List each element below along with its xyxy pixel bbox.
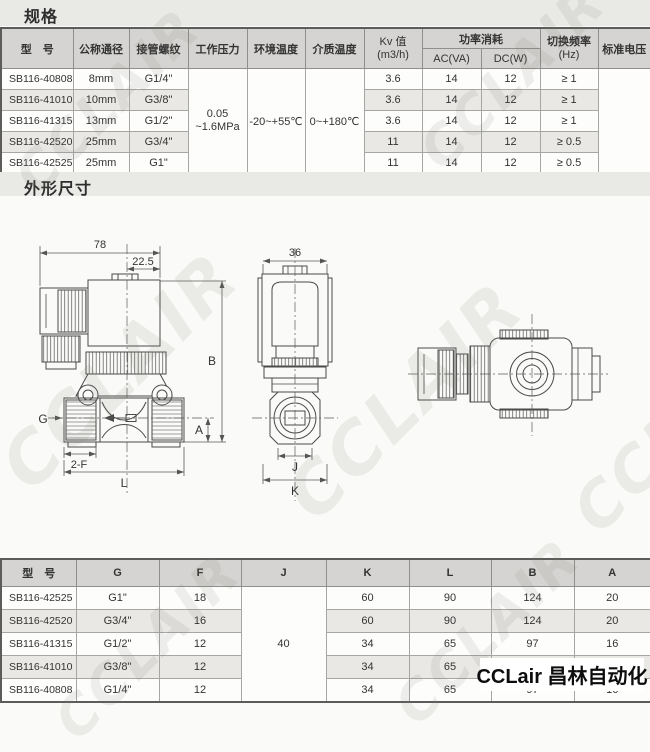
f-cell: 18 bbox=[159, 587, 241, 610]
j-merged-cell: 40 bbox=[241, 587, 326, 703]
g-cell: G1/2" bbox=[76, 633, 159, 656]
model-cell: SB116-40808 bbox=[1, 69, 73, 90]
dim-label-J: J bbox=[292, 460, 298, 474]
freq-cell: ≥ 1 bbox=[540, 69, 598, 90]
thread-cell: G3/4" bbox=[129, 132, 188, 153]
f-cell: 12 bbox=[159, 679, 241, 703]
freq-header-line1: 切换频率 bbox=[541, 36, 598, 49]
diameter-cell: 25mm bbox=[73, 132, 129, 153]
kv-cell: 11 bbox=[364, 153, 422, 175]
dc-cell: 12 bbox=[481, 69, 540, 90]
diameter-cell: 8mm bbox=[73, 69, 129, 90]
spec-header-voltage: 标准电压 bbox=[598, 28, 650, 69]
g-cell: G1/4" bbox=[76, 679, 159, 703]
f-cell: 12 bbox=[159, 633, 241, 656]
spec-table: 型 号 公称通径 接管螺纹 工作压力 环境温度 介质温度 Kv 值 (m3/h)… bbox=[0, 27, 650, 175]
spec-header-dc: DC(W) bbox=[481, 49, 540, 69]
spec-section-band bbox=[0, 0, 650, 26]
dim-label-K: K bbox=[291, 484, 299, 498]
spec-header-medium: 介质温度 bbox=[305, 28, 364, 69]
ac-cell: 14 bbox=[422, 132, 481, 153]
spec-row-0: SB116-40808 8mm G1/4" 0.05 ~1.6MPa -20~+… bbox=[1, 69, 650, 90]
model-cell: SB116-42525 bbox=[1, 587, 76, 610]
freq-header-line2: (Hz) bbox=[541, 49, 598, 62]
pressure-line1: 0.05 bbox=[189, 108, 247, 121]
model-cell: SB116-42520 bbox=[1, 610, 76, 633]
l-cell: 90 bbox=[409, 587, 491, 610]
dim-header-model: 型 号 bbox=[1, 559, 76, 587]
model-cell: SB116-41010 bbox=[1, 656, 76, 679]
k-cell: 34 bbox=[326, 656, 409, 679]
dc-cell: 12 bbox=[481, 132, 540, 153]
dim-row-2: SB116-41315 G1/2" 12 34 65 97 16 bbox=[1, 633, 650, 656]
model-cell: SB116-42525 bbox=[1, 153, 73, 175]
dim-label-22-5: 22.5 bbox=[132, 256, 153, 268]
spec-header-ac: AC(VA) bbox=[422, 49, 481, 69]
kv-cell: 3.6 bbox=[364, 90, 422, 111]
valve-side-view bbox=[40, 274, 184, 447]
thread-cell: G1" bbox=[129, 153, 188, 175]
l-cell: 90 bbox=[409, 610, 491, 633]
dim-row-0: SB116-42525 G1" 18 40 60 90 124 20 bbox=[1, 587, 650, 610]
f-cell: 16 bbox=[159, 610, 241, 633]
valve-outline-drawings: 78 22.5 B G A 2-F L 36 J K bbox=[0, 196, 650, 558]
g-cell: G1" bbox=[76, 587, 159, 610]
spec-header-diameter: 公称通径 bbox=[73, 28, 129, 69]
dim-label-B: B bbox=[208, 354, 216, 368]
k-cell: 34 bbox=[326, 679, 409, 703]
a-cell: 16 bbox=[574, 633, 650, 656]
dim-header-K: K bbox=[326, 559, 409, 587]
k-cell: 60 bbox=[326, 610, 409, 633]
kv-cell: 11 bbox=[364, 132, 422, 153]
ac-cell: 14 bbox=[422, 90, 481, 111]
dim-header-G: G bbox=[76, 559, 159, 587]
diameter-cell: 13mm bbox=[73, 111, 129, 132]
ambient-merged-cell: -20~+55℃ bbox=[247, 69, 305, 175]
model-cell: SB116-40808 bbox=[1, 679, 76, 703]
dim-label-36: 36 bbox=[289, 247, 301, 259]
spec-header-ambient: 环境温度 bbox=[247, 28, 305, 69]
k-cell: 34 bbox=[326, 633, 409, 656]
datasheet-page: { "titles": { "spec": "规格", "dims": "外形尺… bbox=[0, 0, 650, 702]
kv-header-line1: Kv 值 bbox=[365, 36, 422, 49]
model-cell: SB116-41010 bbox=[1, 90, 73, 111]
l-cell: 65 bbox=[409, 633, 491, 656]
dim-header-A: A bbox=[574, 559, 650, 587]
model-cell: SB116-41315 bbox=[1, 633, 76, 656]
b-cell: 124 bbox=[491, 610, 574, 633]
freq-cell: ≥ 0.5 bbox=[540, 153, 598, 175]
pressure-line2: ~1.6MPa bbox=[189, 121, 247, 134]
dc-cell: 12 bbox=[481, 153, 540, 175]
k-cell: 60 bbox=[326, 587, 409, 610]
dc-cell: 12 bbox=[481, 111, 540, 132]
spec-header-pressure: 工作压力 bbox=[188, 28, 247, 69]
diameter-cell: 10mm bbox=[73, 90, 129, 111]
b-cell: 124 bbox=[491, 587, 574, 610]
dim-header-F: F bbox=[159, 559, 241, 587]
pressure-merged-cell: 0.05 ~1.6MPa bbox=[188, 69, 247, 175]
ac-cell: 14 bbox=[422, 69, 481, 90]
spec-header-model: 型 号 bbox=[1, 28, 73, 69]
a-cell: 20 bbox=[574, 587, 650, 610]
dim-label-L: L bbox=[121, 476, 128, 490]
spec-header-power: 功率消耗 bbox=[422, 28, 540, 49]
voltage-merged-cell bbox=[598, 69, 650, 175]
freq-cell: ≥ 1 bbox=[540, 111, 598, 132]
kv-header-line2: (m3/h) bbox=[365, 49, 422, 62]
g-cell: G3/4" bbox=[76, 610, 159, 633]
spec-section-title: 规格 bbox=[24, 3, 58, 27]
dim-label-78: 78 bbox=[94, 239, 106, 251]
spec-header-kv: Kv 值 (m3/h) bbox=[364, 28, 422, 69]
spec-header-thread: 接管螺纹 bbox=[129, 28, 188, 69]
dim-header-J: J bbox=[241, 559, 326, 587]
dim-header-L: L bbox=[409, 559, 491, 587]
model-cell: SB116-42520 bbox=[1, 132, 73, 153]
f-cell: 12 bbox=[159, 656, 241, 679]
thread-cell: G1/2" bbox=[129, 111, 188, 132]
model-cell: SB116-41315 bbox=[1, 111, 73, 132]
dims-section-band bbox=[0, 172, 650, 196]
freq-cell: ≥ 0.5 bbox=[540, 132, 598, 153]
kv-cell: 3.6 bbox=[364, 69, 422, 90]
g-cell: G3/8" bbox=[76, 656, 159, 679]
kv-cell: 3.6 bbox=[364, 111, 422, 132]
b-cell: 97 bbox=[491, 633, 574, 656]
thread-cell: G3/8" bbox=[129, 90, 188, 111]
dim-label-A: A bbox=[195, 423, 203, 437]
brand-logo: CCLair 昌林自动化 bbox=[480, 658, 644, 691]
dim-label-G: G bbox=[38, 412, 47, 426]
dim-header-B: B bbox=[491, 559, 574, 587]
medium-merged-cell: 0~+180℃ bbox=[305, 69, 364, 175]
dim-row-1: SB116-42520 G3/4" 16 60 90 124 20 bbox=[1, 610, 650, 633]
freq-cell: ≥ 1 bbox=[540, 90, 598, 111]
diameter-cell: 25mm bbox=[73, 153, 129, 175]
dc-cell: 12 bbox=[481, 90, 540, 111]
ac-cell: 14 bbox=[422, 111, 481, 132]
ac-cell: 14 bbox=[422, 153, 481, 175]
dim-label-2F: 2-F bbox=[71, 459, 88, 471]
thread-cell: G1/4" bbox=[129, 69, 188, 90]
spec-header-freq: 切换频率 (Hz) bbox=[540, 28, 598, 69]
a-cell: 20 bbox=[574, 610, 650, 633]
